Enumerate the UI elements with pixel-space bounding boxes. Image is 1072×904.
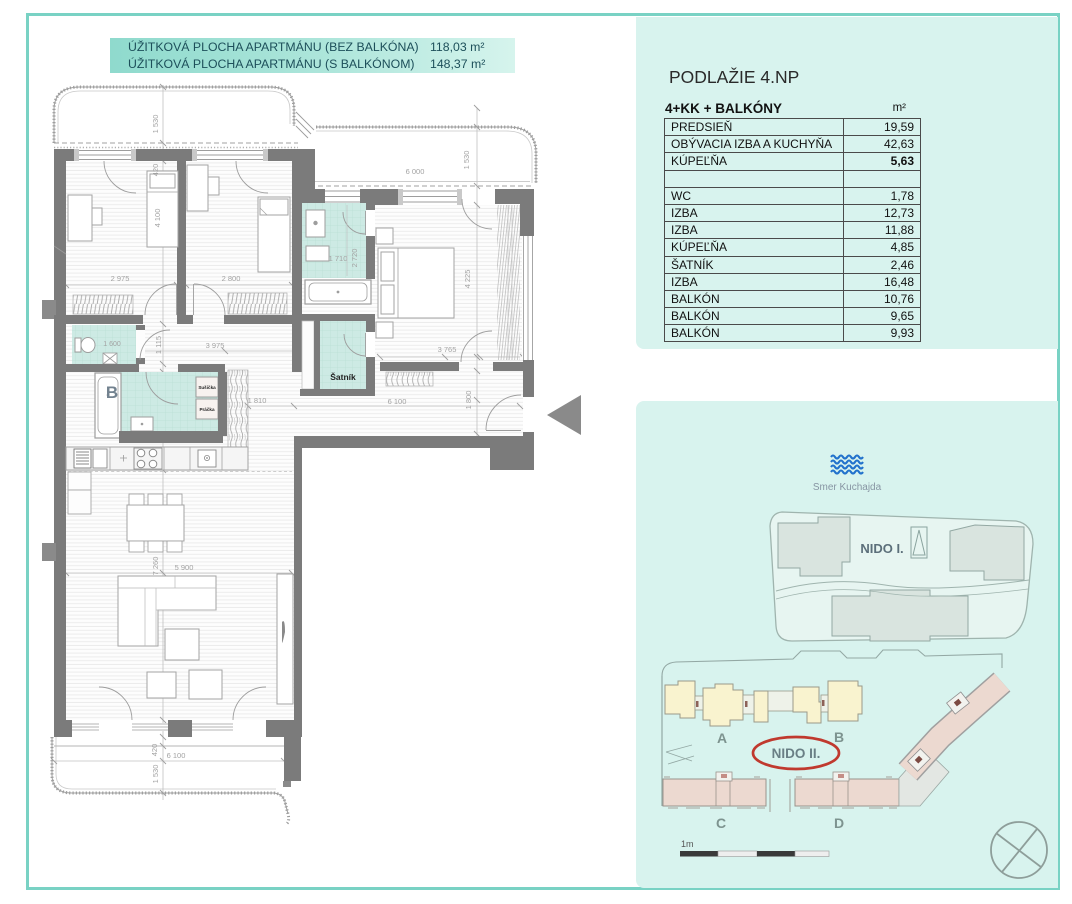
svg-text:2 720: 2 720 (350, 249, 359, 268)
svg-text:D: D (834, 815, 844, 831)
svg-text:NIDO I.: NIDO I. (860, 541, 903, 556)
svg-text:2 800: 2 800 (222, 274, 241, 283)
svg-text:1 710: 1 710 (329, 254, 348, 263)
svg-text:3 975: 3 975 (206, 341, 225, 350)
svg-text:Sušička: Sušička (198, 385, 216, 390)
svg-text:Práčka: Práčka (199, 407, 215, 412)
svg-text:Smer Kuchajda: Smer Kuchajda (813, 482, 882, 493)
svg-text:3 765: 3 765 (438, 345, 457, 354)
svg-text:420: 420 (151, 164, 160, 177)
svg-text:B: B (834, 729, 844, 745)
svg-text:Šatník: Šatník (330, 371, 356, 382)
svg-text:C: C (716, 815, 726, 831)
svg-text:4 100: 4 100 (153, 209, 162, 228)
svg-text:1 530: 1 530 (462, 151, 471, 170)
svg-text:B: B (106, 383, 118, 402)
svg-text:1 810: 1 810 (248, 396, 267, 405)
svg-text:1 800: 1 800 (464, 391, 473, 410)
svg-text:6 100: 6 100 (167, 751, 186, 760)
svg-text:NIDO II.: NIDO II. (772, 746, 821, 761)
svg-text:1 530: 1 530 (151, 115, 160, 134)
svg-text:A: A (717, 730, 727, 746)
svg-text:2 975: 2 975 (111, 274, 130, 283)
svg-text:420: 420 (150, 744, 159, 757)
svg-text:7 260: 7 260 (151, 557, 160, 576)
svg-text:5 900: 5 900 (175, 563, 194, 572)
svg-text:4 225: 4 225 (463, 270, 472, 289)
svg-text:1 530: 1 530 (151, 765, 160, 784)
svg-text:6 100: 6 100 (388, 397, 407, 406)
svg-text:1 115: 1 115 (154, 336, 163, 354)
svg-text:1m: 1m (681, 839, 694, 849)
svg-text:1 600: 1 600 (103, 341, 121, 348)
svg-text:6 000: 6 000 (406, 167, 425, 176)
